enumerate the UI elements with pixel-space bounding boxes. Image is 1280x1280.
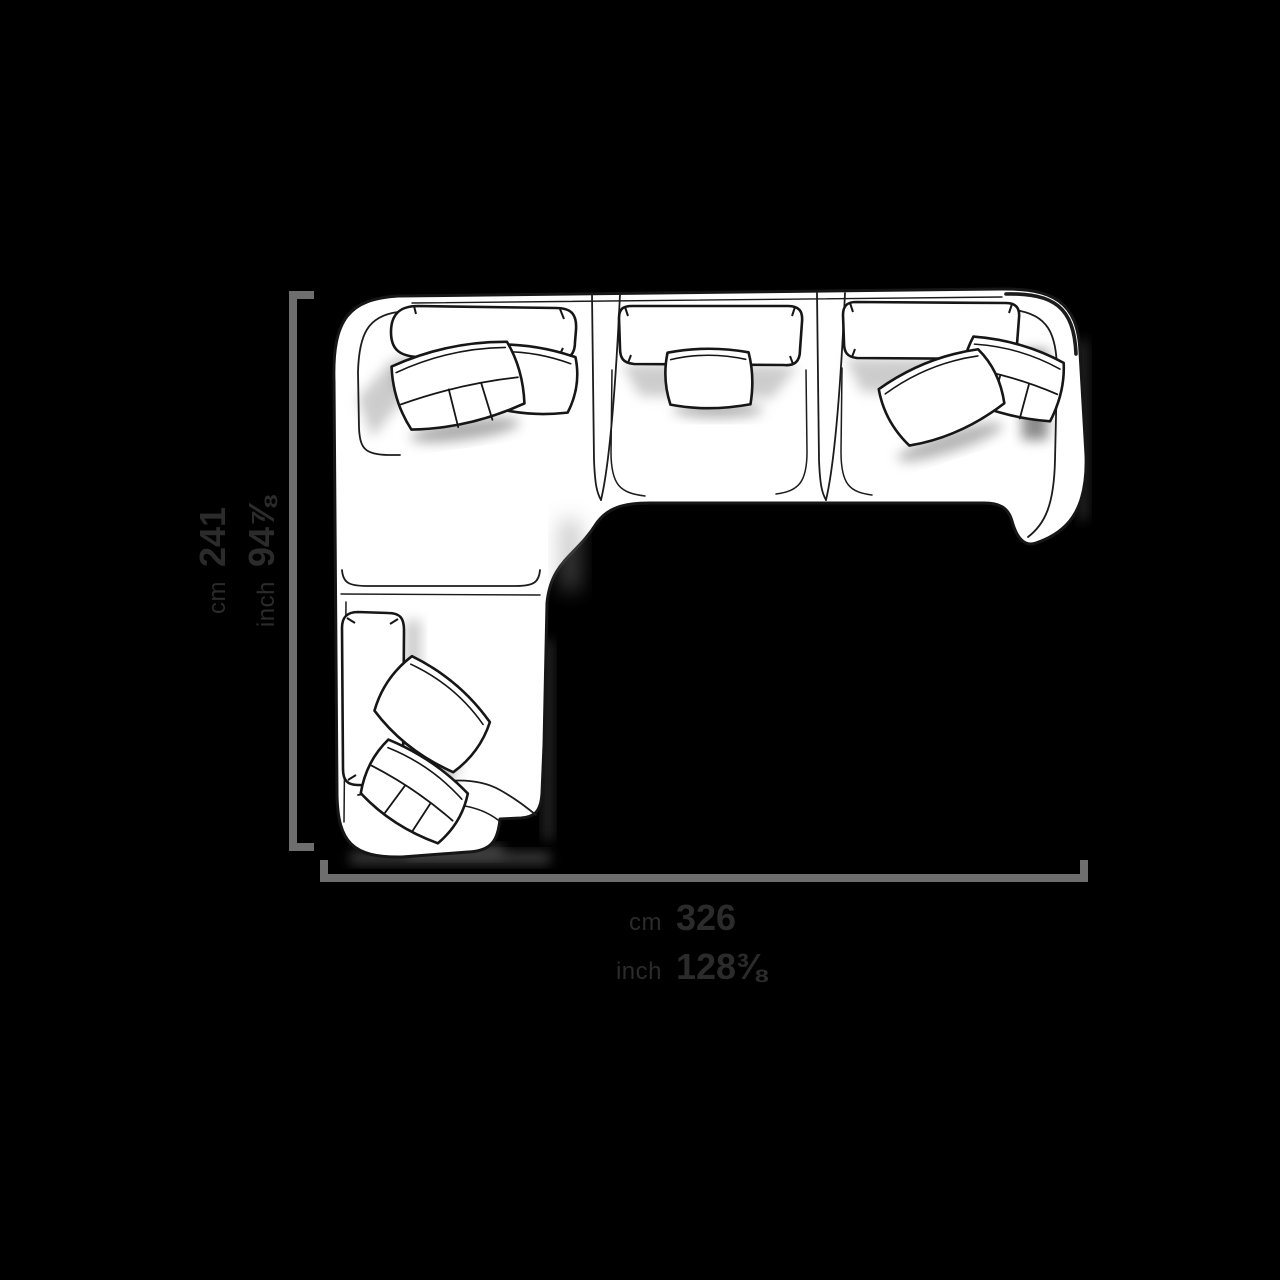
sofa-top-view-sketch (0, 0, 1280, 1280)
diagram-stage: cm 241 inch 94⅞ cm 326 inch 128⅜ (0, 0, 1280, 1280)
pillow-middle-plain (665, 348, 753, 409)
depth-dimension-line (289, 291, 314, 851)
